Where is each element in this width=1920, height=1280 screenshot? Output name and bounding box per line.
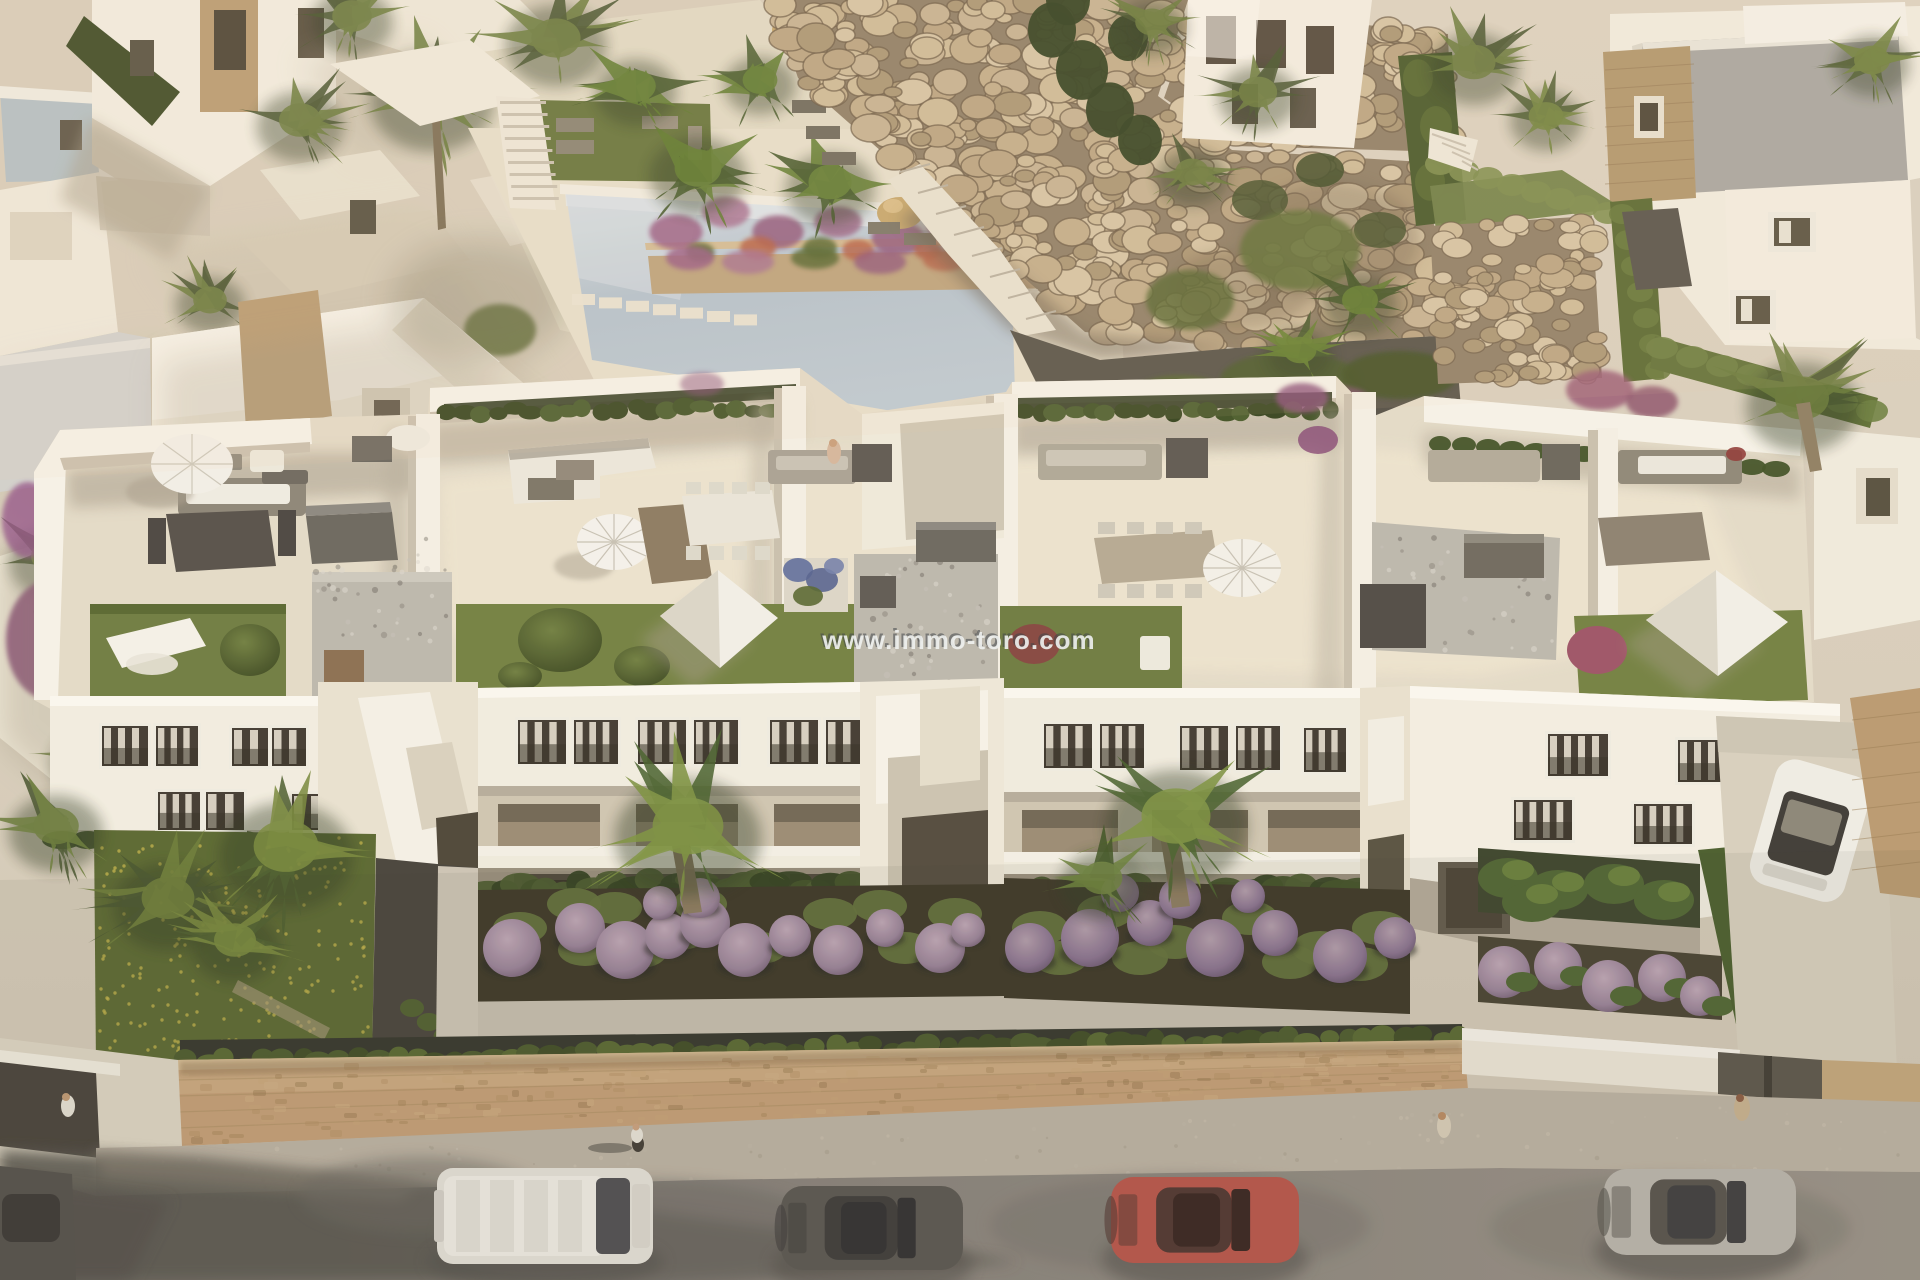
svg-text:www.immo-toro.com: www.immo-toro.com (821, 625, 1095, 655)
